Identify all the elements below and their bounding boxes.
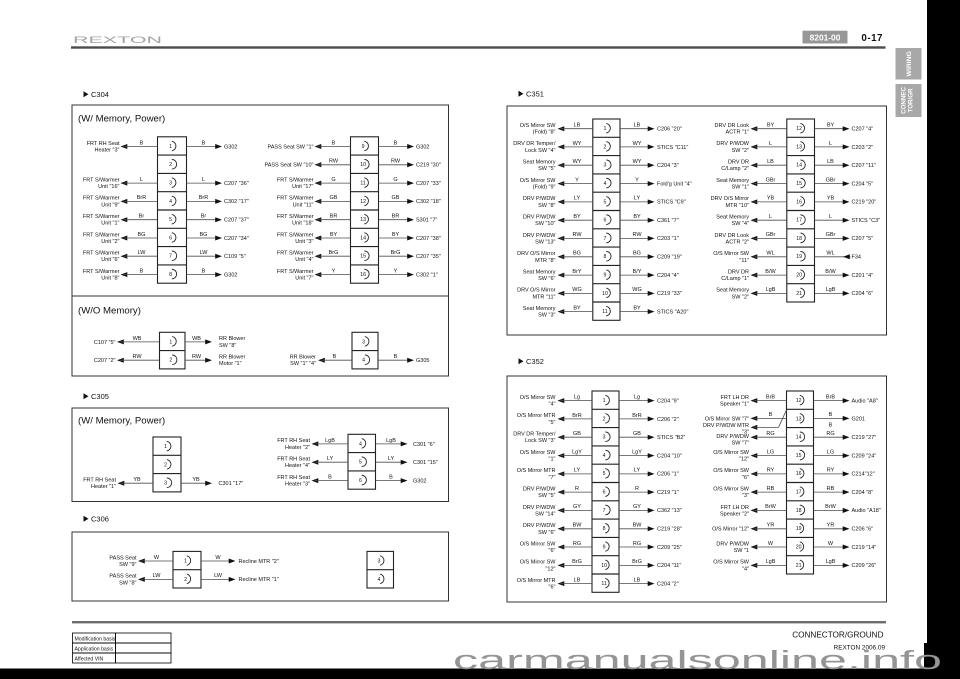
svg-text:1: 1: [169, 339, 172, 345]
svg-text:4: 4: [359, 441, 362, 447]
svg-text:6: 6: [603, 490, 606, 496]
svg-text:RW: RW: [391, 159, 401, 165]
svg-text:(W/O Memory): (W/O Memory): [78, 306, 141, 317]
svg-text:15: 15: [796, 181, 802, 187]
svg-text:1: 1: [184, 558, 187, 564]
svg-text:7: 7: [169, 254, 172, 260]
svg-text:FRT RH Seat: FRT RH Seat: [277, 457, 310, 463]
svg-text:1: 1: [603, 398, 606, 404]
svg-text:PASS Seat: PASS Seat: [109, 574, 137, 580]
svg-text:"6": "6": [742, 475, 749, 481]
svg-text:12: 12: [360, 199, 366, 205]
svg-text:C204 "11": C204 "11": [657, 563, 681, 569]
svg-text:carmanualsonline.info: carmanualsonline.info: [453, 647, 942, 675]
svg-text:B: B: [829, 423, 833, 429]
svg-text:13: 13: [796, 416, 802, 422]
svg-text:"12": "12": [545, 566, 555, 572]
svg-text:B: B: [202, 268, 206, 274]
svg-text:RR Blower: RR Blower: [219, 355, 245, 361]
svg-text:MTR "11": MTR "11": [532, 294, 555, 300]
svg-text:"6": "6": [549, 585, 556, 591]
svg-text:LB: LB: [827, 159, 834, 165]
svg-text:Recline MTR "2": Recline MTR "2": [239, 559, 279, 565]
svg-text:WY: WY: [573, 141, 582, 147]
svg-text:DRV DR Temper/: DRV DR Temper/: [513, 432, 556, 438]
svg-text:L: L: [829, 141, 832, 147]
svg-text:REXTON: REXTON: [73, 35, 162, 46]
svg-text:4: 4: [169, 199, 172, 205]
svg-text:Br: Br: [201, 214, 207, 220]
svg-text:FRT LH DR: FRT LH DR: [720, 395, 749, 401]
svg-text:RW: RW: [192, 354, 202, 360]
svg-text:Heater "3": Heater "3": [285, 482, 310, 488]
svg-text:BrY: BrY: [572, 269, 582, 275]
svg-text:12: 12: [796, 398, 802, 404]
svg-text:Seat Memory: Seat Memory: [716, 215, 749, 221]
svg-text:Motor "1": Motor "1": [219, 361, 242, 367]
svg-text:C206 "20": C206 "20": [657, 127, 682, 133]
svg-text:DRV P/WDW: DRV P/WDW: [523, 215, 556, 221]
svg-text:BrW: BrW: [825, 504, 837, 510]
svg-text:Lock SW "4": Lock SW "4": [525, 148, 556, 154]
svg-text:DRV P/WDW: DRV P/WDW: [523, 233, 556, 239]
svg-text:DRV O/S Mirror: DRV O/S Mirror: [517, 251, 556, 257]
svg-text:"6": "6": [549, 548, 556, 554]
svg-text:3: 3: [164, 481, 167, 487]
svg-text:C/Lamp "1": C/Lamp "1": [721, 276, 749, 282]
svg-text:10: 10: [360, 162, 366, 168]
svg-text:Heater "4": Heater "4": [285, 463, 310, 469]
svg-text:RY: RY: [827, 468, 835, 474]
svg-text:LY: LY: [634, 196, 641, 202]
svg-text:3: 3: [377, 558, 380, 564]
svg-text:BY: BY: [827, 123, 835, 129]
svg-text:LW: LW: [214, 573, 223, 579]
svg-text:C109 "5": C109 "5": [224, 254, 246, 260]
svg-text:C301 "6": C301 "6": [413, 442, 435, 448]
svg-text:DRV P/WDW: DRV P/WDW: [716, 141, 749, 147]
svg-text:C362 "13": C362 "13": [657, 508, 682, 514]
svg-text:L: L: [140, 177, 143, 183]
svg-text:B: B: [394, 140, 398, 146]
svg-text:"3": "3": [742, 493, 749, 499]
svg-text:Heater "2": Heater "2": [285, 445, 310, 451]
svg-text:SW "9": SW "9": [119, 562, 136, 568]
svg-text:BrG: BrG: [632, 559, 642, 565]
svg-text:B: B: [140, 140, 144, 146]
svg-text:16: 16: [360, 272, 366, 278]
svg-text:19: 19: [796, 254, 802, 260]
svg-text:STICS "C9": STICS "C9": [657, 200, 686, 206]
svg-text:Y: Y: [394, 268, 398, 274]
svg-text:C107 "5": C107 "5": [94, 340, 116, 346]
svg-text:LgB: LgB: [826, 287, 836, 293]
svg-text:9: 9: [603, 544, 606, 550]
svg-text:13: 13: [360, 217, 366, 223]
svg-text:B: B: [394, 354, 398, 360]
svg-text:GB: GB: [392, 195, 400, 201]
svg-text:SW "2": SW "2": [732, 294, 749, 300]
svg-text:GBr: GBr: [766, 177, 776, 183]
svg-text:8: 8: [603, 526, 606, 532]
svg-text:(W/ Memory, Power): (W/ Memory, Power): [78, 416, 165, 427]
svg-text:4: 4: [362, 358, 365, 364]
svg-text:WY: WY: [573, 159, 582, 165]
svg-text:GB: GB: [573, 431, 581, 437]
svg-text:BrR: BrR: [632, 413, 642, 419]
svg-text:DRV DR Look: DRV DR Look: [715, 233, 750, 239]
svg-text:C207 "37": C207 "37": [224, 218, 249, 224]
svg-text:LY: LY: [388, 456, 395, 462]
svg-text:16: 16: [796, 199, 802, 205]
svg-text:5: 5: [603, 471, 606, 477]
svg-text:B/W: B/W: [765, 269, 776, 275]
svg-text:"12": "12": [739, 457, 749, 463]
svg-text:4: 4: [377, 577, 380, 583]
svg-text:DRV DR Look: DRV DR Look: [715, 123, 750, 129]
svg-text:BY: BY: [573, 214, 581, 220]
svg-text:LG: LG: [827, 449, 834, 455]
svg-text:W: W: [828, 541, 834, 547]
svg-text:FRT S/Warmer: FRT S/Warmer: [277, 214, 314, 220]
svg-text:BY: BY: [767, 123, 775, 129]
svg-text:4: 4: [604, 181, 607, 187]
svg-text:BG: BG: [573, 251, 581, 257]
svg-text:O/S Mirror SW: O/S Mirror SW: [520, 541, 557, 547]
svg-text:R: R: [635, 486, 639, 492]
svg-text:FRT S/Warmer: FRT S/Warmer: [83, 196, 120, 202]
svg-text:Unit "16": Unit "16": [98, 184, 119, 190]
svg-text:STICS "C3": STICS "C3": [852, 218, 881, 224]
svg-text:C204 "6": C204 "6": [852, 291, 874, 297]
svg-text:SW "1" "4": SW "1" "4": [290, 361, 316, 367]
svg-text:LW: LW: [200, 250, 209, 256]
svg-text:BrB: BrB: [826, 394, 836, 400]
svg-text:3: 3: [604, 163, 607, 169]
svg-text:17: 17: [796, 218, 802, 224]
svg-text:G: G: [331, 177, 335, 183]
svg-text:LB: LB: [574, 577, 581, 583]
svg-text:13: 13: [796, 144, 802, 150]
svg-text:20: 20: [796, 544, 802, 550]
svg-text:"11": "11": [739, 258, 749, 264]
svg-text:G302: G302: [416, 144, 429, 150]
svg-text:O/S Mirror MTR: O/S Mirror MTR: [517, 468, 556, 474]
svg-text:C301 "17": C301 "17": [219, 481, 244, 487]
svg-text:Speaker "2": Speaker "2": [720, 512, 749, 518]
svg-text:Affected VIN: Affected VIN: [75, 656, 104, 662]
svg-text:O/S Mirror MTR: O/S Mirror MTR: [517, 578, 556, 584]
svg-text:FRT S/Warmer: FRT S/Warmer: [83, 251, 120, 257]
svg-text:LB: LB: [574, 123, 581, 129]
svg-text:3: 3: [169, 181, 172, 187]
svg-text:WY: WY: [633, 159, 642, 165]
svg-text:C203 "2": C203 "2": [852, 145, 874, 151]
svg-text:RW: RW: [132, 354, 142, 360]
svg-text:GBr: GBr: [826, 232, 836, 238]
svg-text:BG: BG: [200, 232, 208, 238]
svg-text:GBr: GBr: [766, 232, 776, 238]
svg-text:SW "10": SW "10": [535, 221, 555, 227]
svg-text:DRV O/S Mirror: DRV O/S Mirror: [711, 196, 750, 202]
svg-text:2: 2: [184, 577, 187, 583]
svg-text:12: 12: [796, 126, 802, 132]
svg-text:11: 11: [602, 309, 607, 315]
svg-text:SW "8": SW "8": [119, 580, 136, 586]
svg-text:14: 14: [796, 163, 802, 169]
svg-text:Unit "6": Unit "6": [101, 257, 119, 263]
svg-text:WB: WB: [192, 336, 201, 342]
svg-text:YB: YB: [133, 477, 141, 483]
svg-text:5: 5: [169, 217, 172, 223]
svg-text:LgB: LgB: [766, 287, 776, 293]
svg-text:DRV DR Temper/: DRV DR Temper/: [513, 141, 556, 147]
svg-text:WG: WG: [632, 287, 641, 293]
svg-text:DRV O/S Mirror: DRV O/S Mirror: [517, 288, 556, 294]
svg-text:C206 "1": C206 "1": [657, 472, 679, 478]
svg-text:RR Blower: RR Blower: [290, 355, 316, 361]
svg-text:Unit "2": Unit "2": [101, 239, 119, 245]
svg-text:B: B: [333, 354, 337, 360]
svg-text:15: 15: [796, 453, 802, 459]
svg-text:W: W: [215, 555, 221, 561]
svg-text:2: 2: [164, 462, 167, 468]
svg-text:SW "7": SW "7": [732, 440, 749, 446]
svg-text:SW "6": SW "6": [538, 276, 555, 282]
svg-text:SW "1": SW "1": [732, 185, 749, 191]
svg-text:LY: LY: [634, 468, 641, 474]
svg-text:19: 19: [796, 526, 802, 532]
svg-text:LW: LW: [153, 573, 162, 579]
svg-text:RW: RW: [572, 232, 582, 238]
svg-text:1: 1: [169, 144, 172, 150]
svg-text:BY: BY: [573, 305, 581, 311]
svg-text:STICS "C11": STICS "C11": [657, 145, 688, 151]
svg-text:C/Lamp "2": C/Lamp "2": [721, 166, 749, 172]
svg-text:BrW: BrW: [765, 504, 777, 510]
svg-text:"4": "4": [549, 402, 556, 408]
svg-text:6: 6: [359, 478, 362, 484]
svg-text:R: R: [575, 486, 579, 492]
svg-text:SW "2": SW "2": [732, 148, 749, 154]
svg-text:C219 "1": C219 "1": [657, 490, 679, 496]
svg-text:C207 "38": C207 "38": [416, 236, 441, 242]
svg-text:RR Blower: RR Blower: [219, 336, 245, 342]
svg-text:"3": "3": [742, 429, 749, 435]
svg-text:2: 2: [603, 416, 606, 422]
svg-text:Unit "17": Unit "17": [292, 184, 313, 190]
svg-text:F34: F34: [852, 255, 861, 261]
svg-text:STICS "A20": STICS "A20": [657, 309, 688, 315]
svg-text:B: B: [202, 140, 206, 146]
svg-text:7: 7: [603, 508, 606, 514]
svg-text:SW "1: SW "1: [734, 548, 749, 554]
svg-text:9: 9: [604, 272, 607, 278]
svg-text:3: 3: [603, 435, 606, 441]
svg-text:3: 3: [362, 339, 365, 345]
svg-text:FRT S/Warmer: FRT S/Warmer: [277, 177, 314, 183]
svg-text:W: W: [154, 555, 160, 561]
svg-text:RG: RG: [766, 431, 774, 437]
svg-text:C206 "2": C206 "2": [657, 417, 679, 423]
svg-text:BY: BY: [633, 305, 641, 311]
svg-text:GY: GY: [573, 504, 581, 510]
svg-text:C204 "4": C204 "4": [657, 273, 679, 279]
svg-text:BrG: BrG: [391, 250, 401, 256]
svg-text:FRT S/Warmer: FRT S/Warmer: [277, 196, 314, 202]
svg-text:RG: RG: [826, 431, 834, 437]
svg-text:W: W: [768, 541, 774, 547]
svg-text:C207 "4": C207 "4": [852, 127, 874, 133]
svg-text:G: G: [393, 177, 397, 183]
svg-text:Recline MTR "1": Recline MTR "1": [239, 577, 279, 583]
svg-text:20: 20: [796, 272, 802, 278]
svg-text:C214"12": C214"12": [852, 472, 875, 478]
svg-text:(Fold) "9": (Fold) "9": [533, 185, 556, 191]
svg-text:Unit "8": Unit "8": [101, 276, 119, 282]
svg-text:YR: YR: [767, 523, 775, 529]
svg-text:Audio "A8": Audio "A8": [852, 398, 878, 404]
svg-text:ACTR "2": ACTR "2": [726, 239, 750, 245]
svg-text:FRT S/Warmer: FRT S/Warmer: [83, 214, 120, 220]
svg-text:C219 "27": C219 "27": [852, 435, 877, 441]
svg-text:Unit "1": Unit "1": [101, 221, 119, 227]
svg-text:PASS Seat SW "1": PASS Seat SW "1": [268, 144, 314, 150]
svg-text:BrR: BrR: [199, 195, 209, 201]
svg-text:Unit "7": Unit "7": [295, 276, 313, 282]
svg-text:ACTR "1": ACTR "1": [726, 130, 750, 136]
svg-text:GB: GB: [633, 431, 641, 437]
svg-text:O/S Mirror SW: O/S Mirror SW: [520, 123, 557, 129]
svg-text:Audio "A18": Audio "A18": [852, 508, 881, 514]
svg-text:LW: LW: [138, 250, 147, 256]
svg-text:Modification basis: Modification basis: [75, 636, 116, 642]
svg-text:GB: GB: [330, 195, 338, 201]
svg-text:O/S Mirror "12": O/S Mirror "12": [712, 527, 749, 533]
svg-text:C207 "5": C207 "5": [852, 236, 874, 242]
svg-text:14: 14: [796, 435, 802, 441]
svg-text:G302: G302: [413, 478, 426, 484]
svg-text:2: 2: [169, 162, 172, 168]
svg-text:LgB: LgB: [325, 438, 335, 444]
svg-text:C207 "11": C207 "11": [852, 163, 876, 169]
svg-text:C207 "36": C207 "36": [224, 181, 249, 187]
svg-text:C207 "33": C207 "33": [416, 181, 441, 187]
svg-text:Application basis: Application basis: [75, 646, 114, 652]
svg-text:Y: Y: [332, 268, 336, 274]
svg-text:FRT RH Seat: FRT RH Seat: [277, 438, 310, 444]
svg-text:Seat Memory: Seat Memory: [523, 306, 556, 312]
svg-text:RG: RG: [573, 541, 581, 547]
svg-text:LY: LY: [574, 196, 581, 202]
svg-text:YB: YB: [827, 196, 835, 202]
svg-text:B: B: [829, 412, 833, 418]
svg-text:BrG: BrG: [329, 250, 339, 256]
svg-text:G302: G302: [224, 144, 237, 150]
svg-text:C204 "5": C204 "5": [852, 181, 874, 187]
svg-text:5: 5: [604, 199, 607, 205]
svg-text:C203 "1": C203 "1": [657, 236, 679, 242]
svg-text:FRT S/Warmer: FRT S/Warmer: [277, 269, 314, 275]
svg-text:L: L: [769, 141, 772, 147]
svg-text:C207 "34": C207 "34": [224, 236, 249, 242]
svg-text:DRV P/WDW: DRV P/WDW: [523, 196, 556, 202]
svg-text:DRV P/WDW: DRV P/WDW: [523, 523, 556, 529]
svg-text:BG: BG: [138, 232, 146, 238]
svg-text:Lg: Lg: [634, 394, 640, 400]
svg-text:Seat Memory: Seat Memory: [523, 269, 556, 275]
svg-text:21: 21: [796, 563, 802, 569]
svg-text:G305: G305: [416, 358, 429, 364]
svg-text:9: 9: [362, 144, 365, 150]
svg-text:C201 "4": C201 "4": [852, 273, 874, 279]
svg-text:B/Y: B/Y: [633, 269, 642, 275]
svg-text:2: 2: [604, 144, 607, 150]
svg-text:C204 "3": C204 "3": [657, 163, 679, 169]
svg-text:FRT RH Seat: FRT RH Seat: [277, 475, 310, 481]
svg-text:FRT S/Warmer: FRT S/Warmer: [277, 232, 314, 238]
svg-text:RW: RW: [329, 159, 339, 165]
svg-text:C219 "28": C219 "28": [657, 527, 682, 533]
svg-text:"5": "5": [549, 420, 556, 426]
svg-text:O/S Mirror SW: O/S Mirror SW: [520, 395, 557, 401]
svg-text:C351: C351: [526, 90, 544, 99]
svg-text:Heater "3": Heater "3": [95, 148, 120, 154]
svg-text:BW: BW: [573, 523, 583, 529]
svg-text:O/S Mirror MTR: O/S Mirror MTR: [517, 413, 556, 419]
svg-text:PASS Seat: PASS Seat: [109, 555, 137, 561]
svg-text:BrG: BrG: [572, 559, 582, 565]
svg-text:6: 6: [604, 218, 607, 224]
svg-text:(Fold) "8": (Fold) "8": [533, 130, 556, 136]
svg-text:Unit "9": Unit "9": [101, 202, 119, 208]
svg-text:C302 "18": C302 "18": [416, 199, 441, 205]
svg-text:FRT RH Seat: FRT RH Seat: [87, 141, 120, 147]
svg-text:C209 "26": C209 "26": [852, 563, 877, 569]
svg-text:SW "5": SW "5": [538, 493, 555, 499]
svg-text:YR: YR: [827, 523, 835, 529]
svg-text:Seat Memory: Seat Memory: [716, 178, 749, 184]
svg-text:Speaker "1": Speaker "1": [720, 402, 749, 408]
svg-text:BY: BY: [330, 232, 338, 238]
svg-text:B/W: B/W: [825, 269, 836, 275]
svg-text:Lock SW "3": Lock SW "3": [525, 438, 556, 444]
svg-text:Unit "3": Unit "3": [295, 239, 313, 245]
svg-text:C219 "30": C219 "30": [416, 163, 441, 169]
svg-text:LB: LB: [634, 577, 641, 583]
svg-text:SW "8": SW "8": [219, 343, 236, 349]
svg-text:"1": "1": [549, 457, 556, 463]
svg-text:O/S Mirror SW: O/S Mirror SW: [713, 468, 750, 474]
svg-text:BrR: BrR: [137, 195, 147, 201]
svg-text:O/S Mirror SW: O/S Mirror SW: [713, 560, 750, 566]
svg-text:CONNEC: CONNEC: [901, 87, 908, 114]
svg-text:Br: Br: [139, 214, 145, 220]
svg-text:B: B: [328, 474, 332, 480]
svg-text:C219 "33": C219 "33": [657, 291, 682, 297]
svg-text:0-17: 0-17: [861, 33, 883, 44]
svg-text:O/S Mirror SW "7": O/S Mirror SW "7": [705, 416, 749, 422]
svg-text:WG: WG: [572, 287, 581, 293]
svg-text:C306: C306: [91, 515, 109, 524]
svg-text:DRV P/WDW: DRV P/WDW: [523, 486, 556, 492]
svg-text:Lg: Lg: [574, 394, 580, 400]
svg-text:STICS "B2": STICS "B2": [657, 435, 685, 441]
svg-text:LG: LG: [767, 449, 774, 455]
svg-text:Y: Y: [635, 177, 639, 183]
svg-text:C209 "24": C209 "24": [852, 453, 877, 459]
svg-text:RW: RW: [632, 232, 642, 238]
